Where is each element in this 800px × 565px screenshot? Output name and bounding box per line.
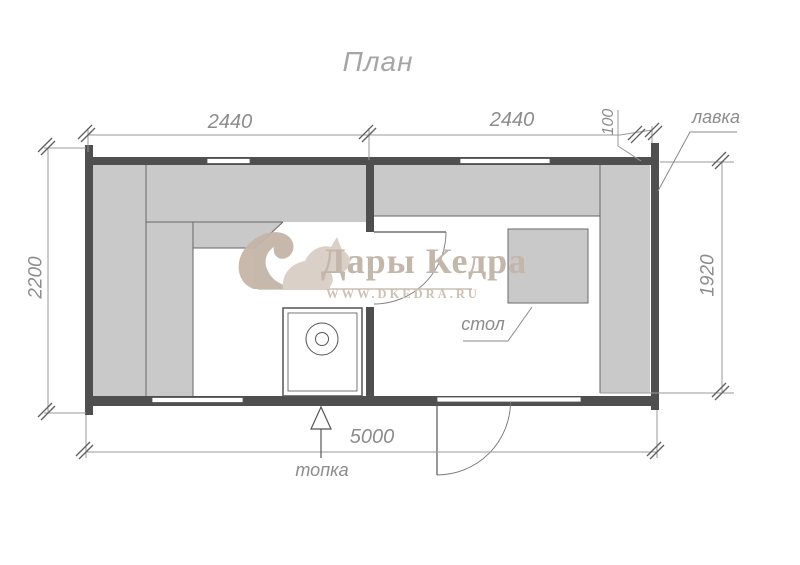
table-leader	[463, 307, 532, 341]
top-bench-right-room	[374, 165, 600, 216]
floor-plan-drawing	[0, 0, 800, 565]
right-wall-bench	[600, 165, 650, 393]
window-top-right	[460, 159, 550, 164]
doors	[374, 232, 511, 475]
wall-right	[651, 143, 659, 410]
wall-top	[88, 157, 652, 165]
floor-plan-page: План 2440 2440 100 2200 1920 5000 лавка …	[0, 0, 800, 565]
entry-door-swing	[437, 402, 511, 476]
entry-opening	[437, 397, 581, 402]
stove	[283, 308, 362, 396]
wall-left	[85, 145, 93, 415]
squirrel-feet	[300, 283, 330, 289]
window-top-left	[207, 159, 250, 164]
top-bench-left-room	[146, 165, 366, 222]
wall-partition-upper	[366, 165, 374, 232]
squirrel-logo-icon	[239, 232, 472, 289]
firebox-arrow	[311, 407, 331, 458]
table	[508, 229, 588, 303]
wall-partition-lower	[366, 307, 374, 396]
window-bottom-left	[152, 398, 243, 403]
inner-door-swing	[374, 232, 446, 304]
